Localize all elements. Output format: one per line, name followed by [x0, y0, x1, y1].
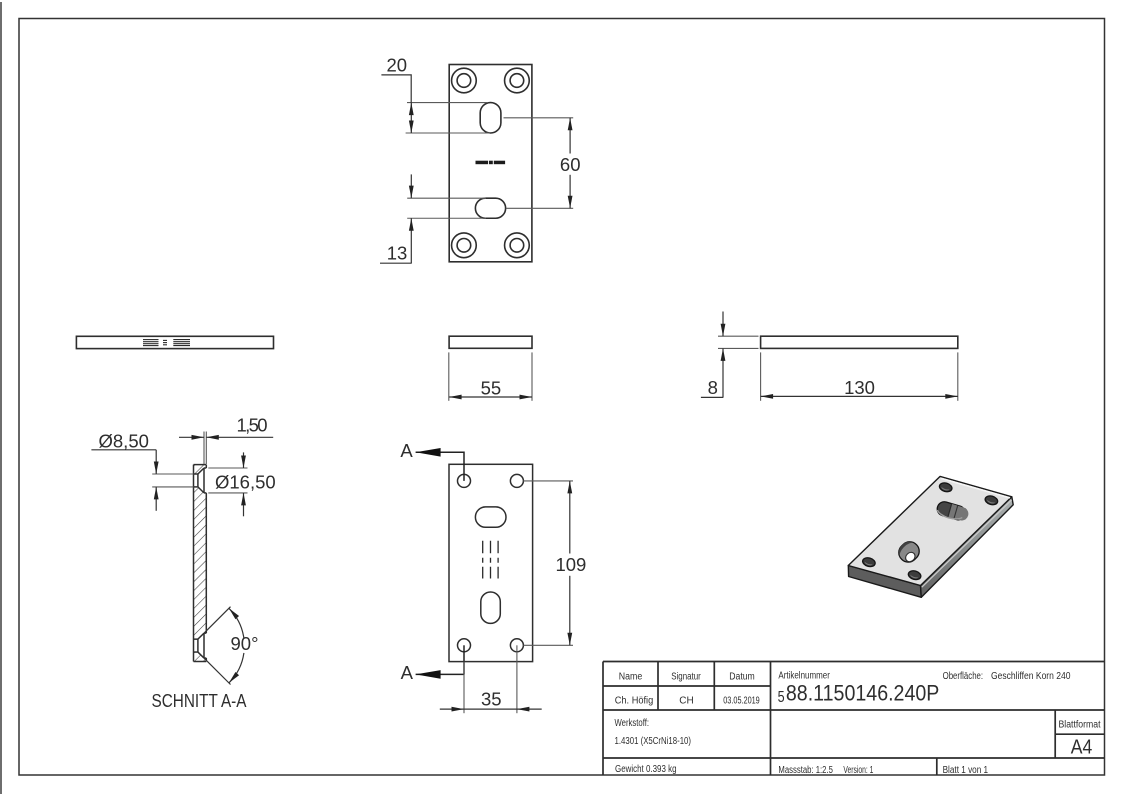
svg-text:13: 13	[387, 243, 408, 264]
svg-text:Gewicht 0.393 kg: Gewicht 0.393 kg	[615, 764, 677, 775]
svg-text:Ch. Höfig: Ch. Höfig	[615, 695, 654, 706]
svg-text:60: 60	[560, 154, 581, 175]
svg-text:Geschliffen Korn 240: Geschliffen Korn 240	[991, 671, 1071, 682]
svg-text:Version: 1: Version: 1	[843, 765, 873, 776]
svg-text:SCHNITT A-A: SCHNITT A-A	[152, 690, 248, 711]
svg-text:Blatt 1 von 1: Blatt 1 von 1	[943, 765, 989, 776]
svg-text:Signatur: Signatur	[671, 671, 701, 682]
svg-text:Datum: Datum	[729, 671, 755, 682]
svg-text:Ø8,50: Ø8,50	[99, 430, 149, 451]
svg-text:35: 35	[481, 689, 502, 710]
svg-text:88.1150146.240P: 88.1150146.240P	[786, 680, 940, 705]
svg-text:A: A	[400, 440, 413, 461]
svg-text:Massstab: 1:2.5: Massstab: 1:2.5	[778, 765, 833, 776]
svg-text:109: 109	[555, 554, 586, 575]
svg-text:55: 55	[481, 377, 502, 398]
svg-text:Oberfläche:: Oberfläche:	[943, 671, 984, 682]
svg-text:130: 130	[844, 377, 875, 398]
svg-text:Blattformat: Blattformat	[1059, 720, 1101, 731]
svg-text:03.05.2019: 03.05.2019	[723, 695, 760, 706]
svg-text:1.4301 (X5CrNi18-10): 1.4301 (X5CrNi18-10)	[615, 736, 692, 747]
svg-text:1,50: 1,50	[237, 415, 268, 436]
svg-text:Werkstoff:: Werkstoff:	[615, 718, 650, 729]
svg-text:A4: A4	[1071, 737, 1093, 759]
svg-text:Ø16,50: Ø16,50	[215, 472, 276, 493]
svg-text:5: 5	[778, 689, 785, 706]
svg-text:A: A	[401, 662, 414, 683]
svg-text:Name: Name	[619, 671, 643, 682]
svg-text:20: 20	[387, 54, 408, 75]
svg-text:8: 8	[708, 377, 718, 398]
svg-text:CH: CH	[679, 695, 693, 706]
svg-text:90°: 90°	[231, 633, 259, 654]
